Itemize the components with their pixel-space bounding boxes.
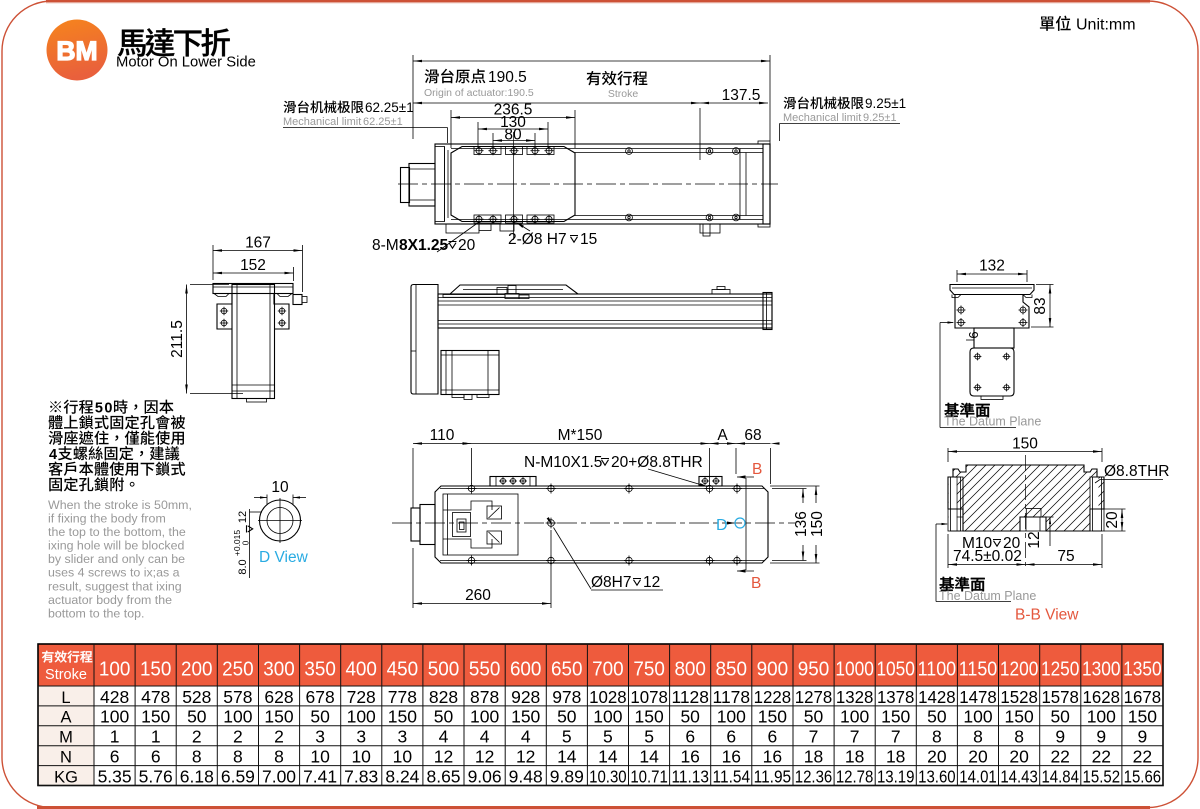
svg-text:450: 450 <box>387 659 419 681</box>
svg-text:1428: 1428 <box>918 687 956 707</box>
svg-text:2-Ø8 H7: 2-Ø8 H7 <box>508 231 567 248</box>
svg-text:150: 150 <box>758 707 787 727</box>
svg-text:62.25±1: 62.25±1 <box>365 100 414 115</box>
svg-text:1178: 1178 <box>713 687 751 707</box>
svg-text:Origin of actuator:190.5: Origin of actuator:190.5 <box>424 87 534 99</box>
svg-text:6: 6 <box>110 747 120 767</box>
svg-text:2: 2 <box>233 727 243 747</box>
svg-text:190.5: 190.5 <box>488 69 527 86</box>
svg-text:167: 167 <box>245 235 271 252</box>
svg-text:10: 10 <box>271 479 289 496</box>
svg-text:1528: 1528 <box>1000 687 1038 707</box>
svg-text:9.25±1: 9.25±1 <box>863 112 897 124</box>
svg-text:5: 5 <box>562 727 572 747</box>
svg-text:6.59: 6.59 <box>221 766 255 786</box>
svg-text:1028: 1028 <box>589 687 627 707</box>
svg-text:950: 950 <box>798 659 830 681</box>
svg-text:300: 300 <box>263 659 295 681</box>
svg-text:100: 100 <box>840 707 869 727</box>
svg-text:1050: 1050 <box>876 659 915 681</box>
svg-text:actuator body from the: actuator body from the <box>48 593 172 607</box>
svg-text:5: 5 <box>644 727 654 747</box>
svg-text:100: 100 <box>347 707 376 727</box>
svg-text:22: 22 <box>1050 747 1069 767</box>
svg-text:11.54: 11.54 <box>713 766 751 786</box>
svg-text:4: 4 <box>521 727 531 747</box>
svg-text:250: 250 <box>222 659 254 681</box>
svg-text:211.5: 211.5 <box>169 320 186 358</box>
svg-text:50: 50 <box>1050 707 1070 727</box>
svg-text:500: 500 <box>428 659 460 681</box>
svg-text:8: 8 <box>973 727 983 747</box>
svg-text:3: 3 <box>398 727 408 747</box>
svg-text:150: 150 <box>511 707 540 727</box>
svg-text:100: 100 <box>223 707 252 727</box>
svg-text:1628: 1628 <box>1083 687 1121 707</box>
svg-text:10: 10 <box>351 747 371 767</box>
svg-text:14.84: 14.84 <box>1041 766 1079 786</box>
svg-text:1328: 1328 <box>836 687 874 707</box>
svg-text:20: 20 <box>927 747 947 767</box>
svg-text:9.06: 9.06 <box>468 766 502 786</box>
svg-text:M: M <box>59 729 73 747</box>
svg-text:8: 8 <box>932 727 942 747</box>
svg-text:14: 14 <box>557 747 577 767</box>
svg-text:D View: D View <box>259 549 309 566</box>
svg-text:200: 200 <box>181 659 213 681</box>
svg-text:150: 150 <box>140 659 172 681</box>
svg-text:18: 18 <box>845 747 864 767</box>
svg-text:2: 2 <box>274 727 284 747</box>
svg-text:528: 528 <box>182 687 211 707</box>
svg-text:4: 4 <box>49 447 57 463</box>
svg-text:16: 16 <box>722 747 741 767</box>
svg-text:400: 400 <box>345 659 377 681</box>
svg-text:4: 4 <box>480 727 490 747</box>
svg-text:20: 20 <box>968 747 988 767</box>
svg-text:11.95: 11.95 <box>754 766 792 786</box>
svg-text:20: 20 <box>458 237 476 254</box>
svg-text:N: N <box>60 749 72 767</box>
svg-text:1278: 1278 <box>795 687 833 707</box>
svg-text:B: B <box>752 461 762 478</box>
svg-text:9: 9 <box>1055 727 1065 747</box>
svg-text:Motor On Lower Side: Motor On Lower Side <box>116 55 256 71</box>
svg-text:8-M: 8-M <box>372 237 399 254</box>
svg-text:750: 750 <box>633 659 665 681</box>
svg-text:800: 800 <box>674 659 706 681</box>
svg-text:1250: 1250 <box>1041 659 1080 681</box>
svg-text:428: 428 <box>100 687 129 707</box>
svg-text:1: 1 <box>110 727 120 747</box>
svg-text:16: 16 <box>763 747 782 767</box>
svg-text:8.0: 8.0 <box>237 559 249 574</box>
svg-text:1000: 1000 <box>835 659 874 681</box>
svg-text:7: 7 <box>809 727 819 747</box>
svg-text:728: 728 <box>347 687 376 707</box>
svg-text:1300: 1300 <box>1082 659 1121 681</box>
svg-text:5.76: 5.76 <box>139 766 173 786</box>
svg-text:1378: 1378 <box>877 687 915 707</box>
svg-text:by slider and only can be: by slider and only can be <box>48 552 185 566</box>
svg-text:110: 110 <box>430 427 455 444</box>
svg-text:15.66: 15.66 <box>1124 766 1162 786</box>
svg-text:12: 12 <box>475 747 494 767</box>
svg-text:uses 4 screws to ix;as a: uses 4 screws to ix;as a <box>48 566 180 580</box>
svg-text:150: 150 <box>141 707 170 727</box>
svg-text:7.41: 7.41 <box>303 766 337 786</box>
svg-text:678: 678 <box>305 687 334 707</box>
svg-text:4: 4 <box>439 727 449 747</box>
svg-text:20+Ø8.8THR: 20+Ø8.8THR <box>611 454 703 471</box>
svg-text:878: 878 <box>470 687 499 707</box>
svg-text:5.35: 5.35 <box>98 766 132 786</box>
svg-text:0: 0 <box>241 540 251 545</box>
svg-text:0: 0 <box>104 401 112 417</box>
svg-text:928: 928 <box>511 687 540 707</box>
svg-text:12: 12 <box>434 747 453 767</box>
svg-text:20: 20 <box>1104 511 1121 529</box>
svg-text:10.71: 10.71 <box>630 766 668 786</box>
svg-text:75: 75 <box>1057 548 1074 565</box>
svg-text:Ø8.8THR: Ø8.8THR <box>1104 463 1169 480</box>
svg-text:350: 350 <box>304 659 336 681</box>
svg-text:150: 150 <box>264 707 293 727</box>
svg-text:50: 50 <box>434 707 454 727</box>
svg-text:22: 22 <box>1092 747 1111 767</box>
svg-text:Unit:mm: Unit:mm <box>1076 17 1136 34</box>
svg-text:16: 16 <box>680 747 699 767</box>
svg-text:8.65: 8.65 <box>426 766 460 786</box>
svg-text:Mechanical limit: Mechanical limit <box>783 112 861 124</box>
svg-text:62.25±1: 62.25±1 <box>363 116 403 128</box>
svg-text:10.30: 10.30 <box>589 766 627 786</box>
svg-text:13.60: 13.60 <box>918 766 956 786</box>
svg-text:1128: 1128 <box>671 687 709 707</box>
svg-text:50: 50 <box>927 707 947 727</box>
svg-text:50: 50 <box>310 707 330 727</box>
svg-text:2: 2 <box>192 727 202 747</box>
svg-text:1478: 1478 <box>959 687 997 707</box>
svg-text:7.83: 7.83 <box>344 766 378 786</box>
svg-text:6: 6 <box>726 727 736 747</box>
svg-text:8: 8 <box>274 747 284 767</box>
svg-text:10: 10 <box>310 747 330 767</box>
svg-text:12: 12 <box>1026 531 1043 548</box>
svg-text:14: 14 <box>639 747 659 767</box>
svg-text:1100: 1100 <box>918 659 957 681</box>
svg-text:13.19: 13.19 <box>877 766 915 786</box>
svg-text:100: 100 <box>470 707 499 727</box>
svg-text:bottom to the top.: bottom to the top. <box>48 606 144 620</box>
svg-text:12.78: 12.78 <box>836 766 874 786</box>
svg-text:14.01: 14.01 <box>959 766 997 786</box>
svg-text:1: 1 <box>151 727 161 747</box>
svg-text:850: 850 <box>716 659 748 681</box>
svg-text:7: 7 <box>891 727 901 747</box>
svg-text:if fixing the body from: if fixing the body from <box>48 512 166 526</box>
svg-text:8: 8 <box>192 747 202 767</box>
svg-text:80: 80 <box>504 127 522 144</box>
svg-text:Stroke: Stroke <box>608 88 639 100</box>
svg-text:11.13: 11.13 <box>671 766 709 786</box>
svg-text:778: 778 <box>388 687 417 707</box>
svg-text:100: 100 <box>99 659 131 681</box>
svg-text:22: 22 <box>1133 747 1152 767</box>
svg-text:1578: 1578 <box>1041 687 1079 707</box>
svg-text:5: 5 <box>603 727 613 747</box>
svg-text:ixing hole will be blocked: ixing hole will be blocked <box>48 539 184 553</box>
svg-text:When the stroke is 50mm,: When the stroke is 50mm, <box>48 498 192 512</box>
svg-text:Ø8H7: Ø8H7 <box>591 574 632 591</box>
svg-text:Mechanical limit: Mechanical limit <box>283 116 361 128</box>
svg-text:600: 600 <box>510 659 542 681</box>
svg-text:20: 20 <box>1009 747 1029 767</box>
svg-text:10: 10 <box>393 747 413 767</box>
svg-text:150: 150 <box>809 511 826 537</box>
svg-text:100: 100 <box>963 707 992 727</box>
svg-text:18: 18 <box>886 747 905 767</box>
svg-text:BM: BM <box>56 36 97 66</box>
svg-text:150: 150 <box>388 707 417 727</box>
svg-text:6: 6 <box>768 727 778 747</box>
svg-text:50: 50 <box>804 707 824 727</box>
svg-text:Stroke: Stroke <box>45 667 87 683</box>
svg-text:8: 8 <box>233 747 243 767</box>
svg-text:900: 900 <box>757 659 789 681</box>
svg-text:12: 12 <box>516 747 535 767</box>
svg-text:152: 152 <box>240 257 266 274</box>
svg-text:50: 50 <box>187 707 207 727</box>
svg-text:478: 478 <box>141 687 170 707</box>
svg-text:N-M10X1.5: N-M10X1.5 <box>524 454 602 471</box>
svg-text:18: 18 <box>804 747 823 767</box>
svg-text:L: L <box>61 689 70 707</box>
svg-text:1228: 1228 <box>754 687 792 707</box>
svg-text:The Datum Plane: The Datum Plane <box>944 415 1041 429</box>
svg-text:7: 7 <box>850 727 860 747</box>
svg-text:B-B View: B-B View <box>1015 607 1079 624</box>
svg-text:15: 15 <box>580 231 597 248</box>
svg-text:150: 150 <box>1012 436 1038 453</box>
svg-text:8X1.25: 8X1.25 <box>399 237 449 254</box>
svg-text:628: 628 <box>264 687 293 707</box>
svg-text:A: A <box>60 709 71 727</box>
svg-text:150: 150 <box>1004 707 1033 727</box>
svg-text:14.43: 14.43 <box>1000 766 1038 786</box>
svg-text:12: 12 <box>237 511 249 523</box>
svg-text:9: 9 <box>1096 727 1106 747</box>
svg-text:260: 260 <box>465 587 491 604</box>
svg-text:15.52: 15.52 <box>1083 766 1121 786</box>
svg-text:700: 700 <box>592 659 624 681</box>
svg-text:1678: 1678 <box>1124 687 1162 707</box>
svg-text:132: 132 <box>979 258 1005 275</box>
svg-text:578: 578 <box>223 687 252 707</box>
svg-text:100: 100 <box>593 707 622 727</box>
svg-text:A: A <box>717 427 728 444</box>
svg-text:1150: 1150 <box>959 659 998 681</box>
svg-text:100: 100 <box>1087 707 1116 727</box>
svg-text:100: 100 <box>717 707 746 727</box>
svg-text:KG: KG <box>54 768 78 786</box>
svg-text:B: B <box>751 575 761 592</box>
svg-text:68: 68 <box>744 427 761 444</box>
svg-text:result, suggest that ixing: result, suggest that ixing <box>48 579 182 593</box>
svg-text:9.48: 9.48 <box>509 766 543 786</box>
svg-text:9.89: 9.89 <box>550 766 584 786</box>
svg-text:83: 83 <box>1032 297 1049 314</box>
svg-text:3: 3 <box>356 727 366 747</box>
svg-text:M*150: M*150 <box>558 427 603 444</box>
svg-text:14: 14 <box>598 747 618 767</box>
svg-text:D: D <box>716 517 728 534</box>
svg-text:The Datum Plane: The Datum Plane <box>939 589 1036 603</box>
svg-text:3: 3 <box>315 727 325 747</box>
svg-text:137.5: 137.5 <box>722 87 761 104</box>
svg-text:the top to the bottom, the: the top to the bottom, the <box>48 525 186 539</box>
svg-text:6: 6 <box>966 331 981 338</box>
svg-text:9.25±1: 9.25±1 <box>865 96 906 111</box>
svg-text:150: 150 <box>634 707 663 727</box>
svg-text:5: 5 <box>95 401 103 417</box>
svg-text:6: 6 <box>151 747 161 767</box>
svg-text:12: 12 <box>643 574 660 591</box>
svg-text:12.36: 12.36 <box>795 766 833 786</box>
svg-text:150: 150 <box>881 707 910 727</box>
svg-text:7.00: 7.00 <box>262 766 296 786</box>
svg-text:136: 136 <box>793 511 810 537</box>
svg-text:6: 6 <box>685 727 695 747</box>
svg-text:9: 9 <box>1138 727 1148 747</box>
svg-text:1078: 1078 <box>630 687 668 707</box>
svg-text:74.5±0.02: 74.5±0.02 <box>953 548 1022 565</box>
svg-text:150: 150 <box>1128 707 1157 727</box>
svg-text:50: 50 <box>680 707 700 727</box>
svg-text:8: 8 <box>1014 727 1024 747</box>
svg-text:650: 650 <box>551 659 583 681</box>
svg-text:978: 978 <box>552 687 581 707</box>
svg-text:1350: 1350 <box>1123 659 1162 681</box>
svg-text:50: 50 <box>557 707 577 727</box>
svg-text:1200: 1200 <box>1000 659 1039 681</box>
svg-text:828: 828 <box>429 687 458 707</box>
svg-text:8.24: 8.24 <box>385 766 419 786</box>
svg-text:6.18: 6.18 <box>180 766 214 786</box>
svg-text:100: 100 <box>100 707 129 727</box>
svg-text:550: 550 <box>469 659 501 681</box>
